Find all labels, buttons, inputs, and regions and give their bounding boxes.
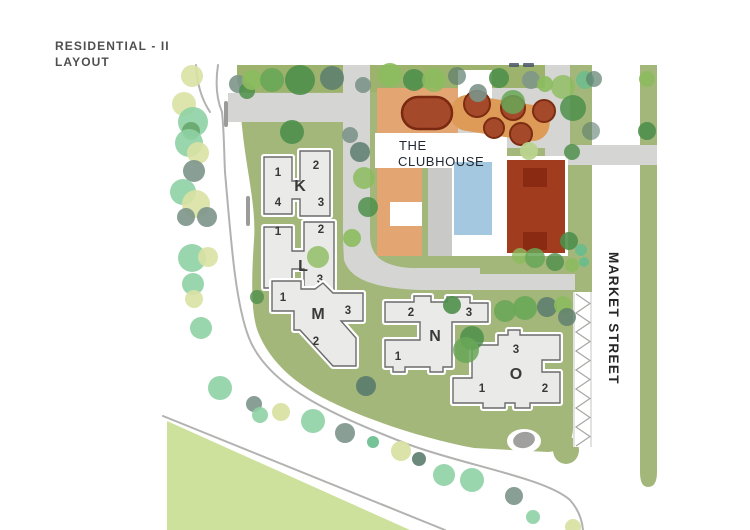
- building-L-unit: 1: [275, 226, 282, 238]
- tree: [185, 290, 203, 308]
- tree: [378, 63, 402, 87]
- tree: [575, 244, 587, 256]
- tree: [356, 376, 376, 396]
- tree: [412, 452, 426, 466]
- clubhouse-label-line2: CLUBHOUSE: [398, 154, 484, 169]
- tree: [505, 487, 523, 505]
- tree: [537, 297, 557, 317]
- tree: [343, 229, 361, 247]
- tree: [320, 66, 344, 90]
- tree: [460, 468, 484, 492]
- court-key-bottom: [523, 232, 547, 250]
- building-K-unit: 1: [275, 167, 282, 179]
- tree: [367, 436, 379, 448]
- tree: [582, 122, 600, 140]
- building-K[interactable]: 1 2 4 3 K: [264, 151, 330, 216]
- tree: [564, 144, 580, 160]
- tree: [272, 403, 290, 421]
- building-N-unit: 2: [408, 307, 414, 319]
- tree: [177, 208, 195, 226]
- swimming-pool: [454, 162, 492, 235]
- tree: [183, 160, 205, 182]
- tree: [453, 337, 479, 363]
- tree: [285, 65, 315, 95]
- tree: [190, 317, 212, 339]
- building-N-unit: 1: [395, 351, 402, 363]
- tree: [252, 407, 268, 423]
- tree: [501, 90, 525, 114]
- shrub-dash: [509, 63, 519, 67]
- tree: [307, 246, 329, 268]
- tree: [525, 248, 545, 268]
- tree: [560, 95, 586, 121]
- tree: [448, 67, 466, 85]
- tree: [197, 207, 217, 227]
- building-K-unit: 4: [275, 197, 282, 209]
- building-K-letter: K: [294, 178, 306, 195]
- tree: [422, 68, 446, 92]
- terracotta-tree: [484, 118, 504, 138]
- tree: [443, 296, 461, 314]
- tree: [242, 70, 262, 90]
- residential-layout-map: THE CLUBHOUSE 1 2 4 3 K 1 2 3 L 1 3 2 M …: [0, 0, 750, 530]
- shrub-dash: [523, 63, 534, 67]
- street-name-label: MARKET STREET: [606, 252, 621, 385]
- building-O-unit: 3: [513, 344, 519, 356]
- tree: [342, 127, 358, 143]
- page-title-line2: LAYOUT: [55, 55, 110, 69]
- tree: [403, 69, 425, 91]
- building-L-letter: L: [298, 258, 308, 275]
- site-plan-page: THE CLUBHOUSE 1 2 4 3 K 1 2 3 L 1 3 2 M …: [0, 0, 750, 530]
- tree: [260, 68, 284, 92]
- terracotta-planter: [402, 97, 452, 129]
- tree: [638, 122, 656, 140]
- tree: [526, 510, 540, 524]
- tree: [639, 71, 655, 87]
- tree: [565, 258, 579, 272]
- tree: [560, 232, 578, 250]
- lane-dash: [246, 196, 250, 226]
- building-O-unit: 2: [542, 383, 548, 395]
- tree: [391, 441, 411, 461]
- building-N-letter: N: [429, 328, 441, 345]
- terracotta-tree: [533, 100, 555, 122]
- tree: [520, 142, 538, 160]
- building-M-unit: 1: [280, 292, 287, 304]
- building-M-letter: M: [311, 306, 324, 323]
- tree: [280, 120, 304, 144]
- tree: [546, 253, 564, 271]
- tree: [301, 409, 325, 433]
- tree: [350, 142, 370, 162]
- tree: [250, 290, 264, 304]
- building-O-letter: O: [510, 366, 522, 383]
- tree: [579, 257, 589, 267]
- tree: [433, 464, 455, 486]
- terracotta-tree: [510, 123, 532, 145]
- tree: [558, 308, 576, 326]
- tree: [522, 71, 540, 89]
- clubhouse-courtyard: [390, 202, 422, 226]
- building-O-unit: 1: [479, 383, 486, 395]
- tree: [494, 300, 516, 322]
- page-title-line1: RESIDENTIAL - II: [55, 39, 170, 53]
- parking-strip: [573, 292, 592, 447]
- tree: [335, 423, 355, 443]
- tree: [537, 76, 553, 92]
- building-M-unit: 3: [345, 305, 351, 317]
- tree: [489, 68, 509, 88]
- building-L-unit: 2: [318, 224, 324, 236]
- tree: [181, 65, 203, 87]
- building-K-unit: 2: [313, 160, 319, 172]
- tree: [208, 376, 232, 400]
- pool-house: [428, 168, 452, 256]
- tree: [513, 296, 537, 320]
- building-K-unit: 3: [318, 197, 324, 209]
- tree: [469, 84, 487, 102]
- court-key-top: [523, 168, 547, 187]
- tree: [586, 71, 602, 87]
- tree: [353, 167, 375, 189]
- building-M-unit: 2: [313, 336, 319, 348]
- tree: [355, 77, 371, 93]
- lane-dash: [224, 101, 228, 127]
- clubhouse-label-line1: THE: [399, 138, 427, 153]
- tree: [198, 247, 218, 267]
- building-N-unit: 3: [466, 307, 472, 319]
- tree: [358, 197, 378, 217]
